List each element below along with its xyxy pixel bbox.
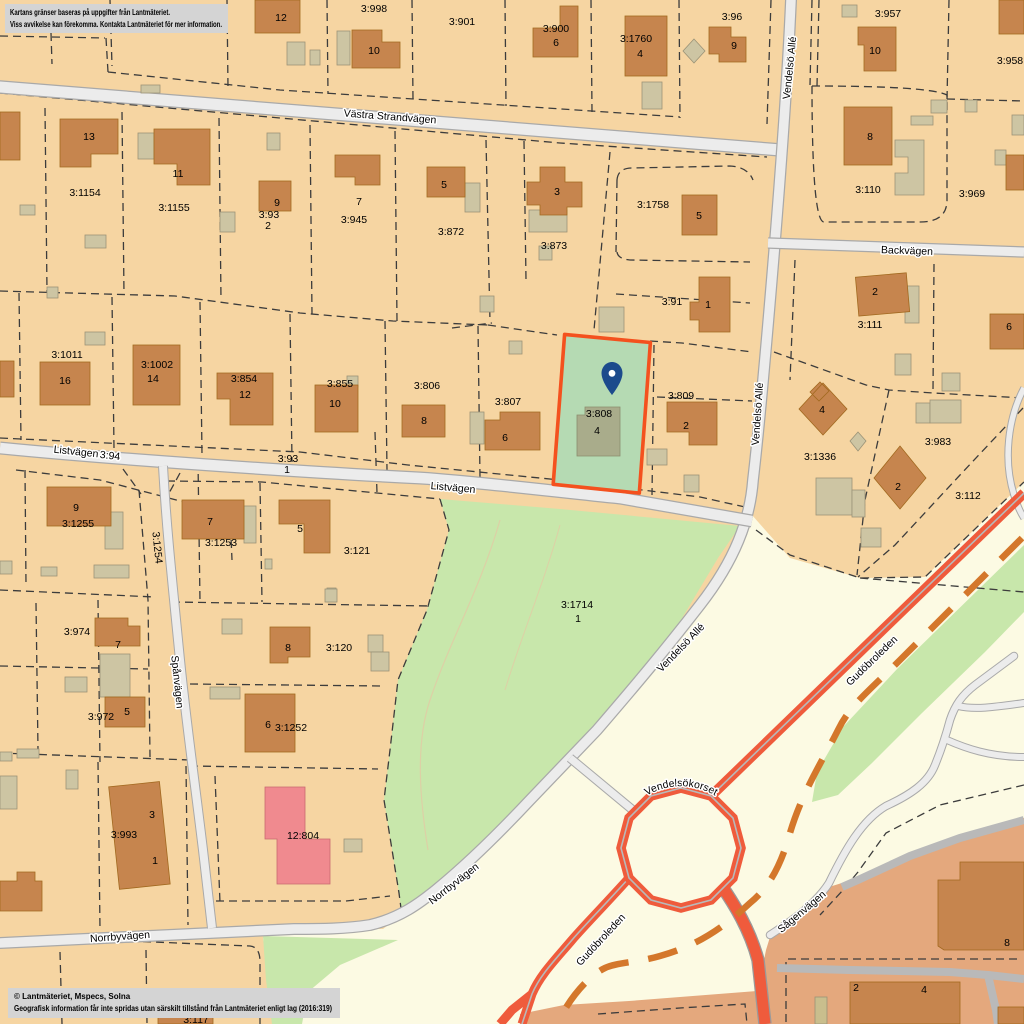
svg-text:10: 10: [329, 398, 341, 410]
svg-text:3:1760: 3:1760: [620, 33, 652, 45]
svg-text:3: 3: [149, 809, 155, 821]
svg-text:12:804: 12:804: [287, 830, 319, 842]
svg-text:Backvägen: Backvägen: [881, 244, 933, 258]
svg-text:5: 5: [696, 210, 702, 222]
svg-text:Viss avvikelse kan förekomma.: Viss avvikelse kan förekomma. Kontakta L…: [10, 20, 222, 29]
svg-text:8: 8: [421, 415, 427, 427]
svg-text:2: 2: [853, 982, 859, 994]
svg-text:3:807: 3:807: [495, 396, 521, 408]
svg-text:2: 2: [683, 420, 689, 432]
svg-text:9: 9: [274, 197, 280, 209]
svg-text:3:111: 3:111: [858, 319, 883, 331]
svg-text:Geografisk information får int: Geografisk information får inte spridas …: [14, 1004, 332, 1013]
svg-text:3:969: 3:969: [959, 188, 985, 200]
svg-text:2: 2: [265, 220, 271, 232]
svg-text:5: 5: [441, 179, 447, 191]
svg-text:Kartans gränser baseras på upp: Kartans gränser baseras på uppgifter frå…: [10, 8, 170, 17]
svg-text:6: 6: [265, 719, 271, 731]
svg-text:7: 7: [207, 516, 213, 528]
svg-text:3:121: 3:121: [344, 545, 370, 557]
svg-text:5: 5: [297, 523, 303, 535]
svg-text:3:873: 3:873: [541, 240, 567, 252]
svg-text:8: 8: [285, 642, 291, 654]
svg-text:3:1758: 3:1758: [637, 199, 669, 211]
svg-text:3:808: 3:808: [586, 408, 612, 420]
svg-text:3:1002: 3:1002: [141, 359, 173, 371]
svg-text:6: 6: [1006, 321, 1012, 333]
svg-text:3:1714: 3:1714: [561, 599, 593, 611]
svg-text:3:1253: 3:1253: [205, 537, 237, 549]
svg-text:12: 12: [275, 12, 287, 24]
svg-text:3:94: 3:94: [99, 449, 121, 463]
svg-text:3:972: 3:972: [88, 711, 114, 723]
svg-text:3:998: 3:998: [361, 3, 387, 15]
svg-text:3:1252: 3:1252: [275, 722, 307, 734]
svg-text:6: 6: [553, 37, 559, 49]
svg-text:3:806: 3:806: [414, 380, 440, 392]
svg-text:3:974: 3:974: [64, 626, 90, 638]
svg-text:10: 10: [368, 45, 380, 57]
svg-text:10: 10: [869, 45, 881, 57]
svg-text:7: 7: [115, 639, 121, 651]
svg-text:3:854: 3:854: [231, 373, 257, 385]
svg-text:1: 1: [575, 613, 581, 625]
svg-text:3:1155: 3:1155: [158, 202, 189, 214]
svg-text:9: 9: [73, 502, 79, 514]
svg-text:3:112: 3:112: [955, 490, 981, 502]
svg-text:3:96: 3:96: [722, 11, 743, 23]
svg-text:8: 8: [1004, 937, 1010, 949]
svg-text:7: 7: [356, 196, 362, 208]
svg-text:11: 11: [173, 168, 184, 180]
svg-text:3:809: 3:809: [668, 390, 694, 402]
svg-text:9: 9: [731, 40, 737, 52]
svg-text:8: 8: [867, 131, 873, 143]
svg-text:3:1336: 3:1336: [804, 451, 836, 463]
svg-text:3:1011: 3:1011: [51, 349, 82, 361]
svg-text:3:91: 3:91: [662, 296, 683, 308]
svg-text:4: 4: [819, 404, 825, 416]
svg-text:13: 13: [83, 131, 95, 143]
svg-text:6: 6: [502, 432, 508, 444]
svg-text:3: 3: [554, 186, 560, 198]
svg-text:3:957: 3:957: [875, 8, 901, 20]
svg-text:2: 2: [872, 286, 878, 298]
svg-text:3:945: 3:945: [341, 214, 367, 226]
svg-text:3:872: 3:872: [438, 226, 464, 238]
svg-text:4: 4: [921, 984, 927, 996]
svg-text:3:958: 3:958: [997, 55, 1023, 67]
svg-text:4: 4: [637, 48, 643, 60]
svg-text:3:1255: 3:1255: [62, 518, 94, 530]
svg-text:3:901: 3:901: [449, 16, 475, 28]
svg-text:© Lantmäteriet, Mspecs, Solna: © Lantmäteriet, Mspecs, Solna: [14, 992, 131, 1001]
svg-text:1: 1: [152, 855, 158, 867]
svg-text:5: 5: [124, 706, 130, 718]
svg-text:3:900: 3:900: [543, 23, 569, 35]
svg-text:2: 2: [895, 481, 901, 493]
svg-text:3:855: 3:855: [327, 378, 353, 390]
svg-text:1: 1: [284, 464, 290, 476]
svg-text:16: 16: [59, 375, 71, 387]
svg-text:4: 4: [594, 425, 600, 437]
svg-text:14: 14: [147, 373, 159, 385]
svg-text:3:1154: 3:1154: [69, 187, 100, 199]
svg-text:3:993: 3:993: [111, 829, 137, 841]
svg-text:3:983: 3:983: [925, 436, 951, 448]
svg-text:3:110: 3:110: [855, 184, 881, 196]
svg-text:12: 12: [239, 389, 251, 401]
svg-text:3:120: 3:120: [326, 642, 352, 654]
svg-text:1: 1: [705, 299, 711, 311]
